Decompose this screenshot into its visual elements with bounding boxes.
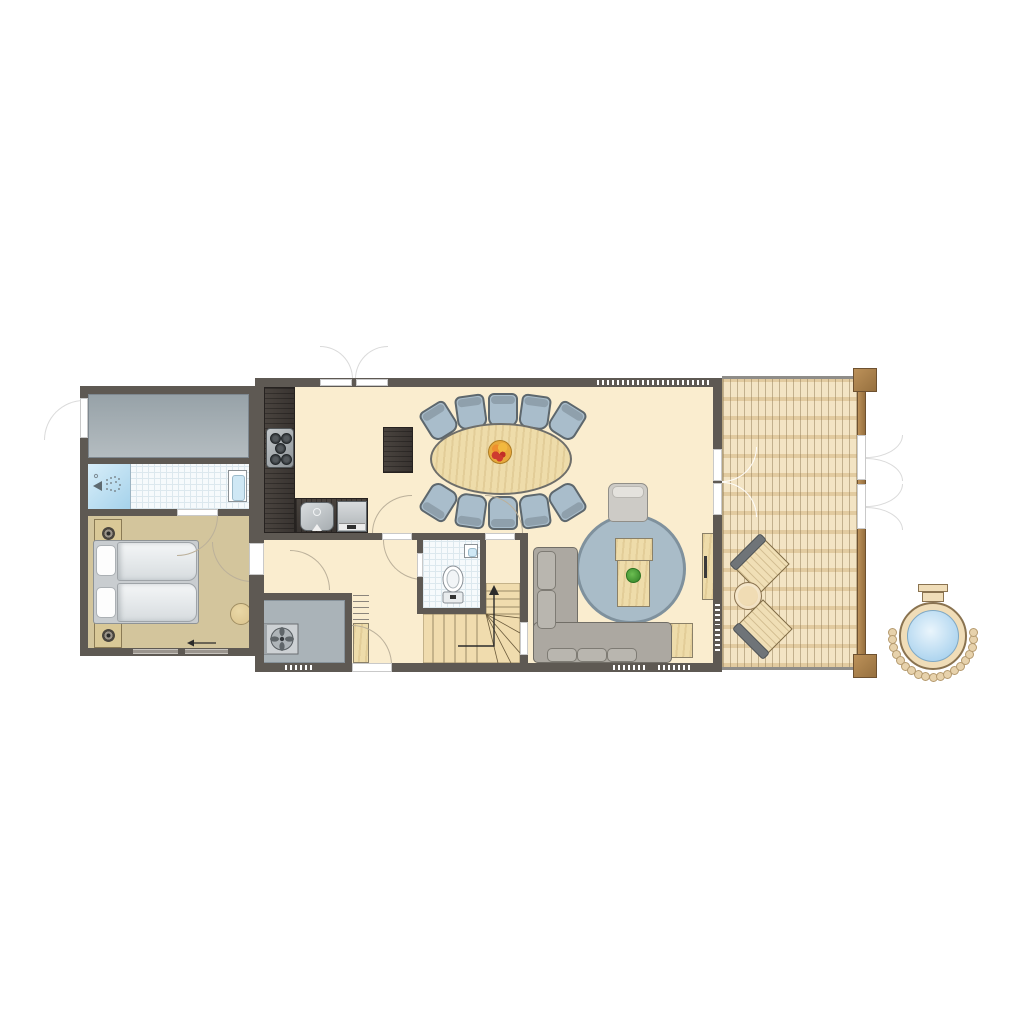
- sofa-back-cushion: [537, 551, 556, 590]
- right-window-1: [715, 604, 720, 625]
- deck-gate-2: [857, 484, 866, 529]
- storage-room-floor: [88, 394, 249, 458]
- floor-plan: [0, 0, 1024, 1024]
- stairs-dining-door-gap: [485, 533, 515, 540]
- living-stairs-door-gap: [520, 622, 528, 655]
- hot-tub-stone: [968, 643, 977, 652]
- deck-door-leaf-bottom: [713, 483, 722, 515]
- main-wall-right: [713, 378, 722, 672]
- hall-dining-door-gap: [382, 533, 412, 540]
- deck-gate-1: [857, 435, 866, 480]
- dining-chair: [488, 393, 518, 427]
- utility-wall-east: [345, 593, 352, 663]
- deck-post-bottom: [853, 654, 877, 678]
- utility-shelving: [353, 595, 369, 622]
- bathroom-door-gap: [177, 509, 218, 516]
- shower-head-icon: [90, 470, 132, 504]
- burner-icon: [281, 433, 292, 444]
- hot-tub: [872, 574, 994, 686]
- burner-icon: [275, 443, 286, 454]
- deck-door-leaf-top: [713, 449, 722, 481]
- sofa-back-cushion: [537, 590, 556, 629]
- hot-tub-stone-ring: [872, 574, 994, 686]
- lamp-icon: [102, 527, 115, 540]
- right-window-2: [715, 629, 720, 652]
- french-door-arc-right: [355, 346, 388, 379]
- bathroom-washbasin: [228, 470, 247, 502]
- deck-edge-top: [722, 376, 857, 379]
- main-wall-bottom: [255, 663, 722, 672]
- living-window-1: [613, 665, 645, 670]
- dishwasher: [337, 501, 367, 532]
- sofa-back-cushion: [577, 648, 607, 662]
- sofa-back-cushion: [607, 648, 637, 662]
- french-door-arc-left: [320, 346, 353, 379]
- staircase: [423, 583, 520, 663]
- coffee-table-top: [615, 538, 653, 561]
- toilet-door-gap: [417, 553, 423, 577]
- lamp-icon: [102, 629, 115, 642]
- ventilation-unit: [261, 623, 299, 655]
- main-wall-left: [255, 378, 264, 672]
- hot-tub-stone: [969, 628, 978, 637]
- fruit-bowl: [488, 440, 512, 464]
- annex-exterior-door-arc: [44, 400, 84, 440]
- bed-pillow-2: [96, 587, 116, 618]
- nightstand-bottom: [94, 621, 122, 648]
- dining-sideboard: [383, 427, 413, 473]
- annex-inner-wall-1: [88, 458, 249, 464]
- french-door-leaf-right: [356, 379, 388, 386]
- side-table: [670, 623, 693, 658]
- bedroom-window-2: [185, 649, 228, 654]
- toilet-wall-east: [480, 540, 486, 614]
- annex-inner-wall-2: [88, 509, 249, 516]
- stove: [266, 428, 294, 468]
- cabinet-handle: [704, 556, 707, 578]
- annex-exterior-door: [80, 398, 88, 438]
- armchair: [608, 483, 648, 522]
- utility-wall-north: [255, 593, 352, 600]
- toilet-wall-south: [417, 608, 486, 614]
- bed-pillow-1: [96, 545, 116, 576]
- burner-icon: [281, 454, 292, 465]
- bedroom-door-gap: [249, 543, 264, 575]
- deck-post-top: [853, 368, 877, 392]
- utility-window: [285, 665, 313, 670]
- top-window: [597, 380, 710, 385]
- deck-gate-arc-2b: [866, 507, 903, 530]
- dining-chair: [518, 492, 552, 530]
- toilet-hand-basin: [464, 544, 478, 558]
- back-door-gap: [352, 663, 392, 672]
- deck-edge-bottom: [722, 667, 857, 670]
- sofa-back-cushion: [547, 648, 577, 662]
- deck-gate-arc-2a: [866, 484, 903, 507]
- bed-duvet-2: [117, 583, 197, 622]
- living-window-2: [658, 665, 690, 670]
- bedroom-window-1: [133, 649, 178, 654]
- toilet-wall-west: [417, 540, 423, 614]
- annex-wall-top: [80, 386, 257, 394]
- french-door-leaf-left: [320, 379, 352, 386]
- deck-gate-arc-1b: [866, 458, 903, 481]
- kitchen-sink: [300, 502, 334, 531]
- burner-icon: [270, 454, 281, 465]
- potted-plant: [626, 568, 641, 583]
- deck-gate-arc-1a: [866, 435, 903, 458]
- dining-chair: [454, 492, 488, 530]
